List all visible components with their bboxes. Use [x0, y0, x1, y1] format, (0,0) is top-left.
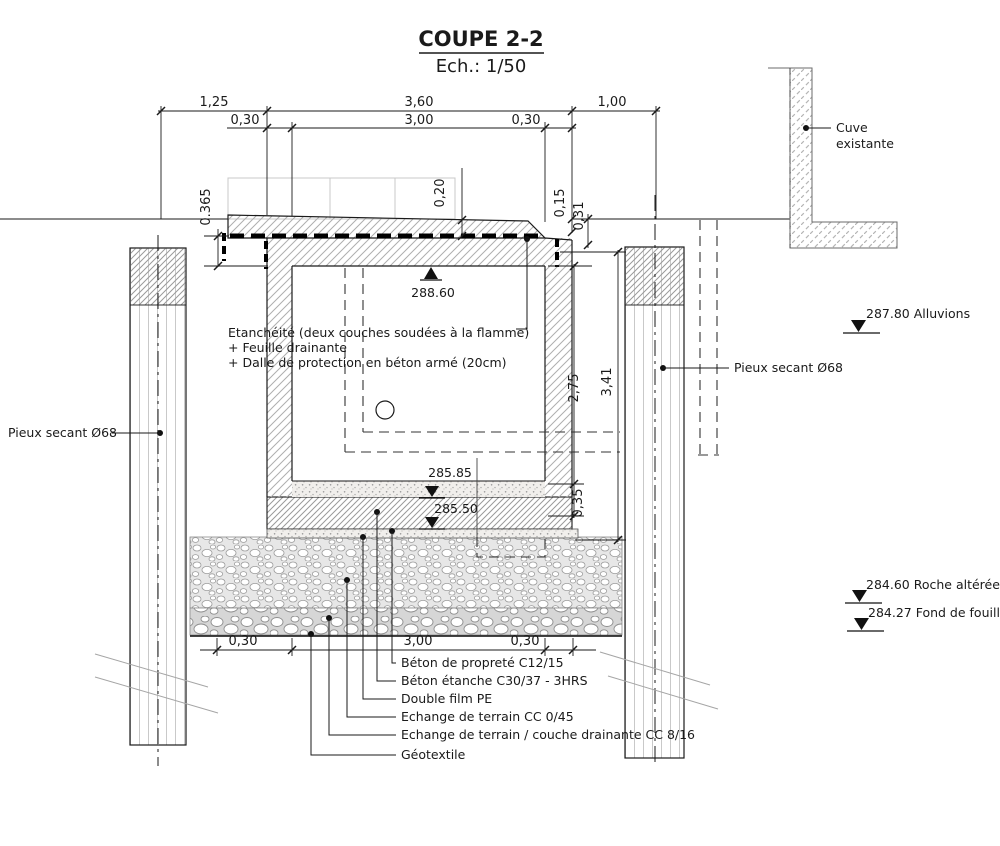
dim-1-25: 1,25 — [200, 95, 229, 110]
label-material-film-pe: Double film PE — [401, 691, 492, 706]
dim-0-15: 0,15 — [553, 189, 568, 218]
dim-3-41: 3,41 — [600, 368, 615, 397]
label-material-etanche: Béton étanche C30/37 - 3HRS — [401, 673, 588, 688]
section-drawing: COUPE 2-2 Ech.: 1/50 — [0, 0, 1000, 846]
drawing-sheet: COUPE 2-2 Ech.: 1/50 — [0, 0, 1000, 846]
page-title: COUPE 2-2 — [418, 27, 543, 51]
dim-3-60: 3,60 — [405, 95, 434, 110]
soil-strata — [190, 537, 622, 636]
level-288-60: 288.60 — [411, 267, 455, 300]
svg-text:287.80 Alluvions: 287.80 Alluvions — [866, 306, 970, 321]
level-287-80: 287.80 Alluvions — [843, 306, 970, 333]
label-cuve-1: Cuve — [836, 120, 868, 135]
svg-text:285.50: 285.50 — [434, 501, 478, 516]
label-pile-right: Pieux secant Ø68 — [734, 360, 843, 375]
dim-0-35: 0,35 — [571, 489, 586, 518]
ghost-structure — [228, 178, 455, 219]
label-waterproofing-3: + Dalle de protection en béton armé (20c… — [228, 355, 507, 370]
radier-slab — [267, 497, 572, 529]
label-pile-left: Pieux secant Ø68 — [8, 425, 117, 440]
pile-right — [625, 195, 684, 766]
dim-0-30-right: 0,30 — [512, 113, 541, 128]
dim-bottom-0-30-right: 0,30 — [511, 634, 540, 649]
lean-concrete — [267, 529, 578, 538]
level-284-27: 284.27 Fond de fouille — [847, 605, 1000, 631]
scale-label: Ech.: 1/50 — [436, 56, 527, 77]
pile-left — [130, 235, 186, 766]
label-material-geotextile: Géotextile — [401, 747, 466, 762]
title-block: COUPE 2-2 Ech.: 1/50 — [418, 27, 544, 77]
label-waterproofing-2: + Feuille drainante — [228, 340, 347, 355]
gravel-layer-cc045 — [190, 537, 622, 608]
drainage-layer-cc816 — [190, 608, 622, 635]
dim-bottom-0-30-left: 0,30 — [229, 634, 258, 649]
wall-left — [267, 266, 292, 497]
floor-protection-band — [292, 481, 545, 497]
svg-text:288.60: 288.60 — [411, 285, 455, 300]
leader-cuve — [803, 125, 831, 131]
label-cuve-2: existante — [836, 136, 894, 151]
label-material-proprete: Béton de propreté C12/15 — [401, 655, 564, 670]
roof-slab — [267, 238, 572, 266]
drain-circle — [376, 401, 394, 419]
dim-0-20: 0,20 — [433, 179, 448, 208]
existing-tank-wall — [768, 68, 897, 248]
label-waterproofing-1: Etanchéité (deux couches soudées à la fl… — [228, 325, 529, 340]
dim-0-30-left: 0,30 — [231, 113, 260, 128]
dim-1-00: 1,00 — [598, 95, 627, 110]
dim-0-365: 0.365 — [199, 188, 214, 225]
level-284-60: 284.60 Roche altérée — [845, 577, 1000, 603]
dim-0-31: 0,31 — [572, 202, 587, 231]
svg-text:284.60 Roche altérée: 284.60 Roche altérée — [866, 577, 1000, 592]
dim-2-75: 2,75 — [567, 374, 582, 403]
dim-bottom-3-00: 3,00 — [404, 634, 433, 649]
svg-text:285.85: 285.85 — [428, 465, 472, 480]
label-material-cc816: Echange de terrain / couche drainante CC… — [401, 727, 695, 742]
dim-3-00: 3,00 — [405, 113, 434, 128]
tank-structure — [228, 215, 578, 538]
svg-text:284.27 Fond de fouille: 284.27 Fond de fouille — [868, 605, 1000, 620]
label-material-cc045: Echange de terrain CC 0/45 — [401, 709, 574, 724]
